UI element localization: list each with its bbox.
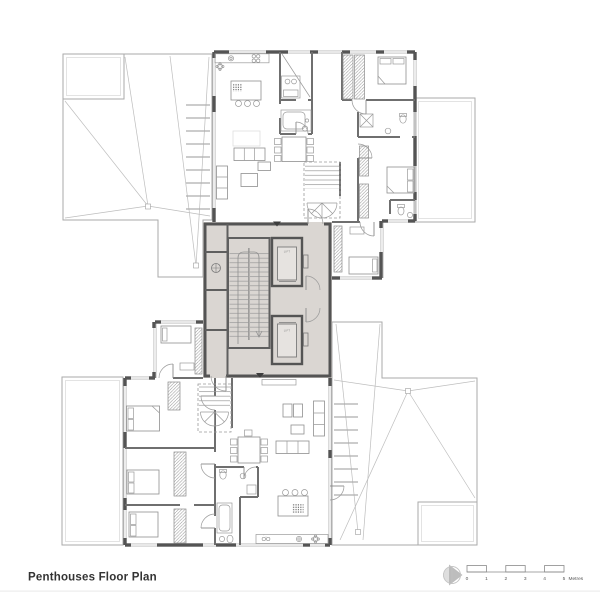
roof-drain — [146, 204, 151, 209]
wardrobe — [168, 382, 180, 410]
upper-living — [217, 131, 271, 199]
wardrobe — [343, 55, 353, 99]
lower-internal-stair — [198, 384, 231, 432]
wardrobe — [360, 146, 369, 176]
scale-label-5: 5 — [563, 576, 566, 582]
core-stair — [228, 238, 270, 348]
roof-drain — [356, 530, 361, 535]
stair-core: LIFT LIFT — [203, 209, 332, 391]
terrace-decking-strip — [186, 104, 210, 210]
wardrobe — [360, 184, 369, 218]
upper-bedroom-3 — [334, 226, 378, 274]
wardrobe — [355, 55, 365, 99]
wardrobe — [174, 509, 186, 543]
terrace-skylight-notch — [418, 502, 477, 545]
ceiling-fan-icon — [216, 63, 224, 71]
footer: Penthouses Floor Plan 0 1 2 3 4 5 Metres — [0, 565, 600, 592]
lower-bedroom-1 — [127, 382, 181, 431]
lower-kitchen — [256, 490, 328, 544]
lift-label: LIFT — [284, 250, 291, 254]
lower-bath-2 — [217, 503, 233, 543]
wardrobe — [195, 328, 202, 374]
upper-dining — [275, 137, 314, 162]
north-indicator-icon — [444, 565, 463, 586]
roof-drain — [194, 263, 199, 268]
closet-door — [282, 54, 310, 97]
lower-bedroom-2 — [127, 452, 186, 496]
wardrobe — [334, 226, 342, 272]
scale-unit-label: Metres — [569, 576, 584, 582]
terrace-upper-right — [415, 98, 475, 222]
page-edge-line — [0, 591, 600, 592]
roof-terrace-upper-left — [63, 54, 212, 277]
scale-label-2: 2 — [504, 576, 507, 582]
scale-label-3: 3 — [524, 576, 527, 582]
terrace-skylight-notch — [63, 54, 124, 99]
lower-dining — [231, 430, 268, 463]
upper-bedroom-1 — [343, 55, 406, 99]
upper-bath-2 — [360, 114, 407, 134]
ceiling-fan-icon — [312, 535, 320, 543]
lower-living — [262, 380, 325, 454]
floor-plan-canvas: LIFT LIFT — [0, 0, 600, 600]
lower-bedroom-4 — [161, 326, 202, 374]
terrace-decking-strip — [334, 392, 358, 504]
upper-bedroom-2 — [360, 146, 415, 218]
upper-wc — [398, 205, 413, 218]
plan-title: Penthouses Floor Plan — [28, 572, 157, 584]
scale-bar: 0 1 2 3 4 5 Metres — [466, 566, 584, 583]
roof-drain — [406, 389, 411, 394]
scale-label-1: 1 — [485, 576, 488, 582]
lift-label: LIFT — [284, 329, 291, 333]
wardrobe — [174, 452, 186, 496]
roof-terrace-lower-right — [332, 322, 477, 545]
floor-plan-page: LIFT LIFT — [0, 0, 600, 600]
lower-bedroom-3 — [129, 509, 186, 543]
terrace-lower-left — [62, 377, 123, 545]
scale-label-0: 0 — [466, 576, 469, 582]
scale-label-4: 4 — [543, 576, 546, 582]
lower-bath-1 — [220, 470, 257, 495]
upper-internal-stair — [304, 162, 340, 218]
